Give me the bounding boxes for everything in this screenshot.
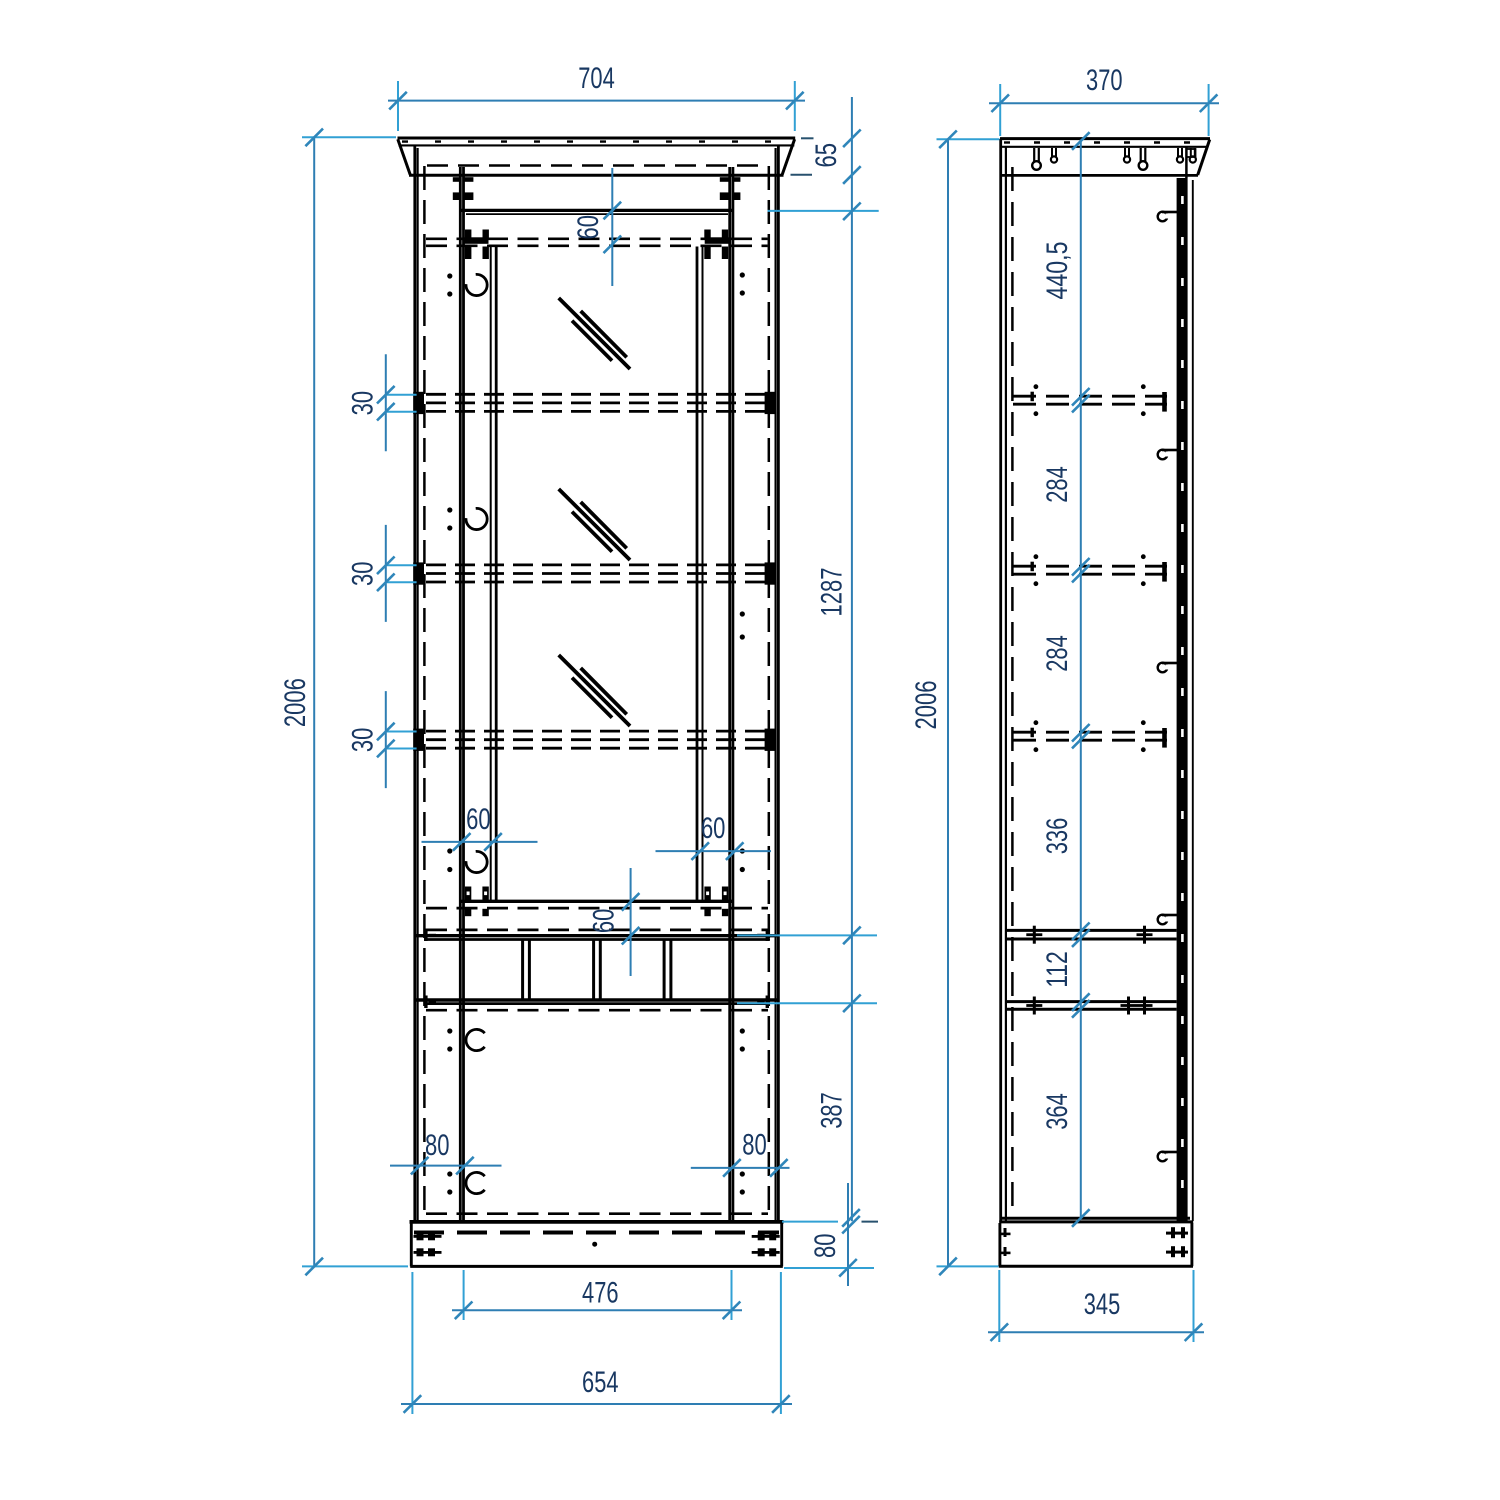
svg-text:476: 476 (582, 1276, 619, 1309)
svg-text:440,5: 440,5 (1041, 242, 1074, 300)
svg-text:30: 30 (346, 561, 379, 586)
svg-text:60: 60 (466, 803, 491, 836)
svg-text:80: 80 (742, 1128, 767, 1161)
svg-text:30: 30 (346, 728, 379, 753)
svg-text:336: 336 (1041, 818, 1074, 855)
svg-text:2006: 2006 (279, 678, 312, 727)
svg-text:387: 387 (816, 1092, 849, 1129)
svg-text:80: 80 (809, 1234, 842, 1259)
svg-text:30: 30 (346, 391, 379, 416)
svg-text:60: 60 (572, 215, 605, 240)
svg-text:654: 654 (582, 1366, 619, 1399)
svg-text:80: 80 (425, 1129, 450, 1162)
svg-text:60: 60 (587, 909, 620, 934)
svg-text:364: 364 (1041, 1093, 1074, 1130)
svg-text:284: 284 (1041, 635, 1074, 672)
svg-text:112: 112 (1041, 951, 1074, 988)
svg-text:345: 345 (1084, 1288, 1121, 1321)
svg-text:2006: 2006 (910, 681, 943, 730)
svg-text:284: 284 (1041, 466, 1074, 503)
svg-text:65: 65 (810, 143, 843, 168)
svg-text:60: 60 (701, 812, 726, 845)
svg-text:704: 704 (578, 62, 615, 95)
svg-text:1287: 1287 (816, 568, 849, 617)
svg-text:370: 370 (1086, 64, 1123, 97)
